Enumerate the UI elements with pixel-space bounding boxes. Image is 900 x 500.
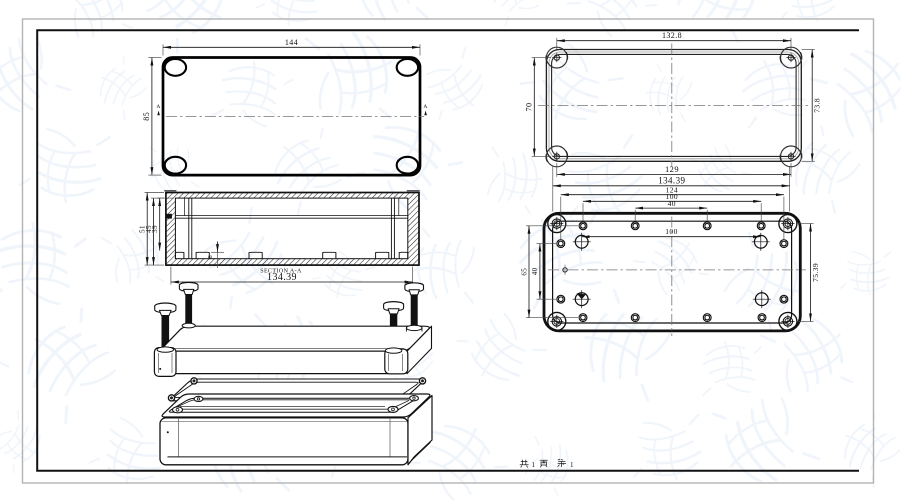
svg-text:132.8: 132.8 (662, 31, 682, 40)
svg-text:6: 6 (207, 255, 214, 259)
svg-text:40: 40 (531, 267, 539, 275)
svg-text:65: 65 (520, 268, 528, 276)
svg-text:70: 70 (525, 103, 534, 112)
svg-text:73.8: 73.8 (813, 98, 822, 113)
svg-text:100: 100 (665, 227, 677, 236)
svg-text:134.39: 134.39 (267, 272, 297, 283)
svg-text:A: A (423, 104, 427, 110)
svg-text:75.39: 75.39 (811, 263, 820, 282)
svg-text:A: A (156, 104, 160, 110)
svg-text:144: 144 (285, 38, 298, 47)
svg-text:134.39: 134.39 (658, 176, 685, 186)
svg-text:1: 1 (570, 461, 574, 469)
svg-text:1: 1 (532, 461, 536, 469)
svg-text:40: 40 (668, 199, 676, 208)
svg-text:39: 39 (151, 225, 159, 233)
svg-text:85: 85 (142, 112, 151, 121)
svg-text:129: 129 (665, 164, 679, 174)
